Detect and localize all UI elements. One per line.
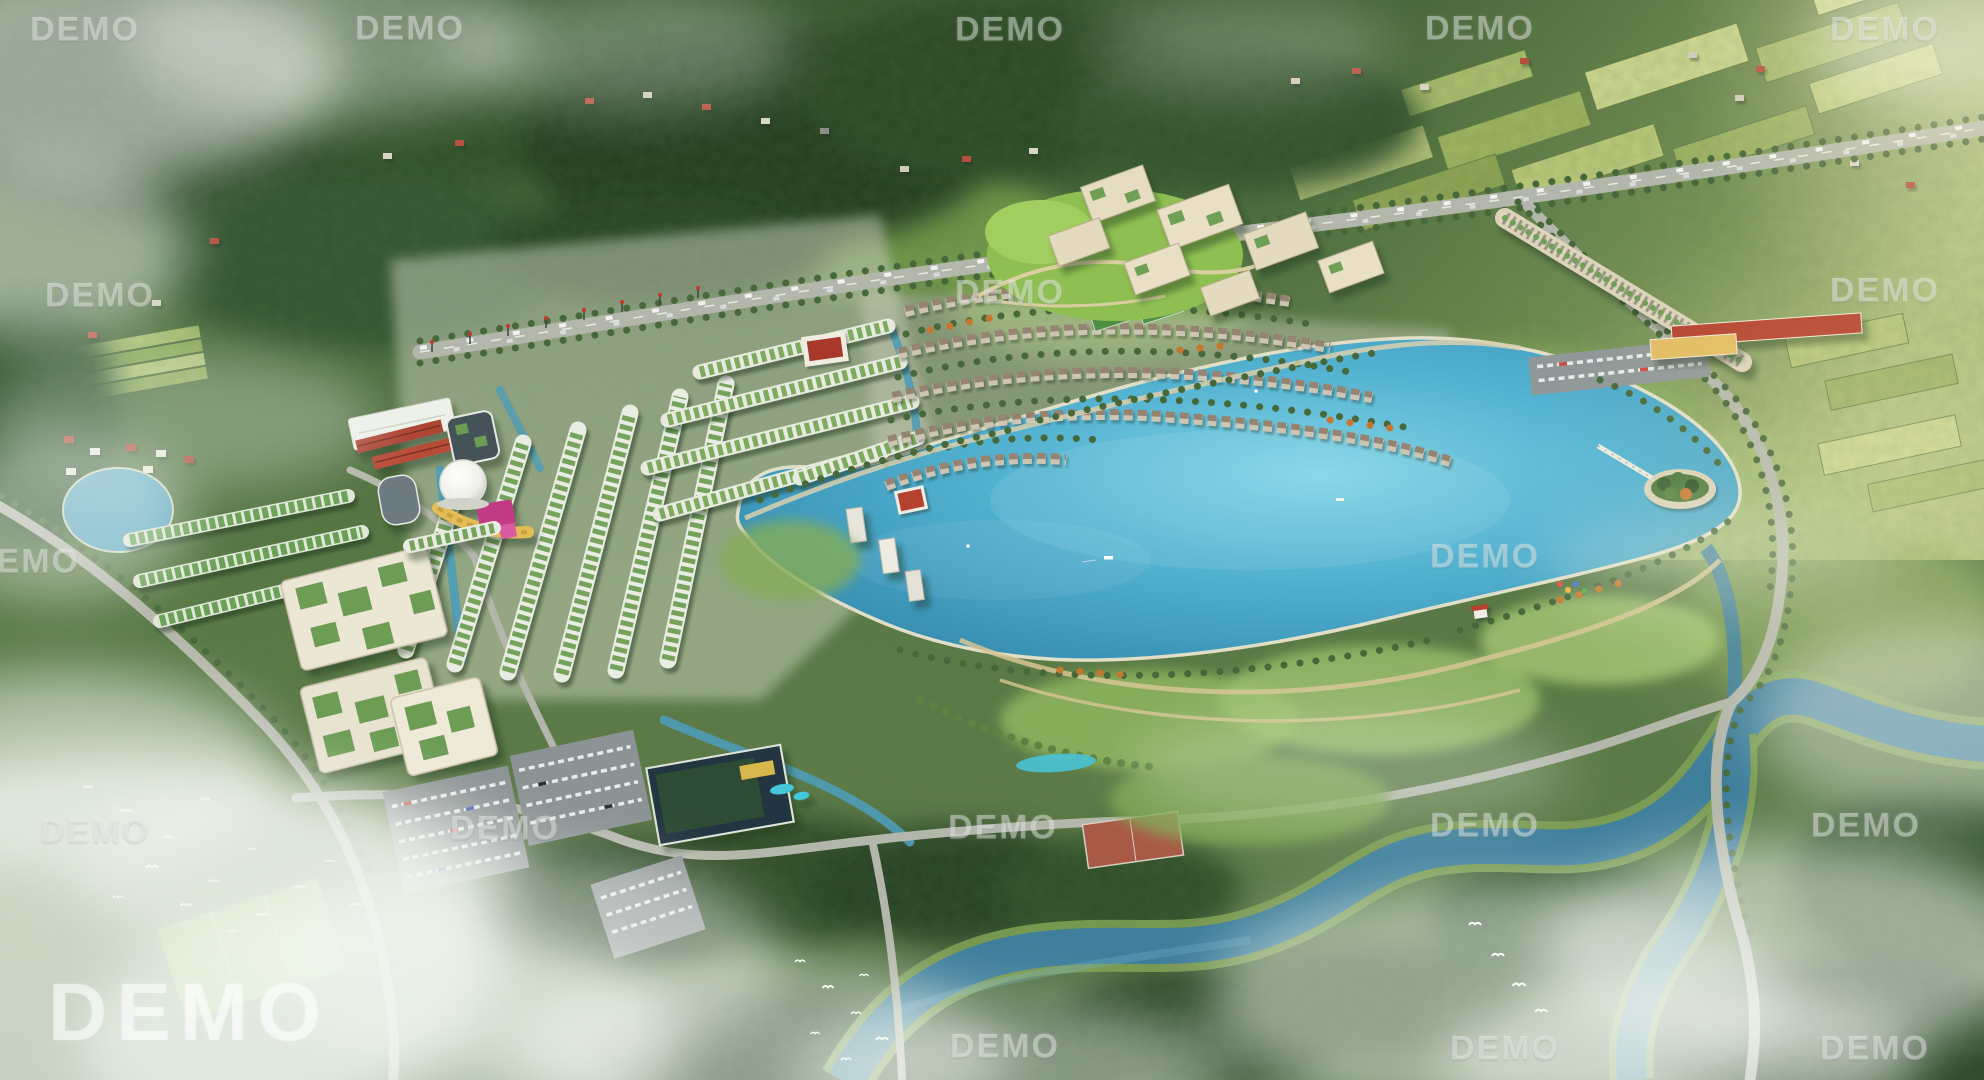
- aerial-render: DEMO DEMODEMODEMODEMODEMODEMODEMODEMODEM…: [0, 0, 1984, 1080]
- red-roof-mansion: [801, 331, 849, 367]
